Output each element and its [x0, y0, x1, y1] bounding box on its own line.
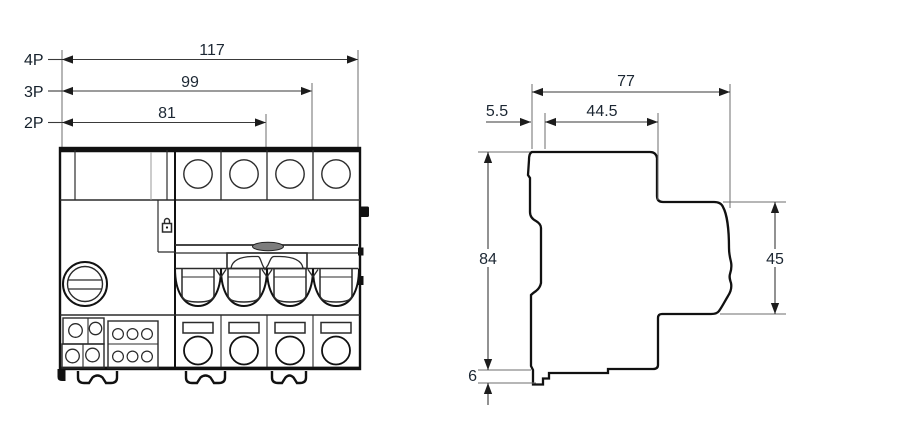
terminal-hole: [276, 160, 304, 188]
dim-value-117: 117: [199, 42, 225, 59]
terminal-hole: [230, 160, 258, 188]
side-view: 77 5.5 44.5 84 45 6: [468, 73, 787, 405]
dim-value-44-5: 44.5: [586, 103, 617, 120]
side-dimension-lines: 77 5.5 44.5 84 45 6: [468, 73, 787, 405]
side-profile: [528, 152, 731, 385]
top-terminal-row: [60, 150, 360, 200]
mounting-feet: [58, 369, 307, 383]
terminal-hole: [322, 160, 350, 188]
handle-hump: [253, 242, 284, 250]
mounting-foot: [272, 371, 306, 383]
dim-value-84: 84: [479, 251, 497, 268]
drawing-svg: 4P 117 3P 99 2P 81: [0, 0, 900, 445]
toggle-handles: [175, 269, 359, 307]
pole-label-4p: 4P: [24, 52, 44, 69]
dim-value-99: 99: [181, 74, 199, 91]
dimension-drawing: 4P 117 3P 99 2P 81: [0, 0, 900, 445]
dim-value-77: 77: [617, 73, 635, 90]
pole-label-2p: 2P: [24, 115, 44, 132]
corner-hook: [58, 369, 66, 381]
test-dial: [63, 262, 107, 306]
padlock-column: [158, 200, 175, 252]
aux-terminals: [62, 318, 104, 368]
dim-value-81: 81: [158, 105, 176, 122]
front-dimension-lines: 4P 117 3P 99 2P 81: [24, 42, 358, 148]
pole-label-3p: 3P: [24, 84, 44, 101]
handle-bar: [231, 257, 303, 270]
front-device-body: [58, 148, 370, 383]
mounting-foot: [78, 371, 117, 383]
dim-value-5-5: 5.5: [486, 103, 508, 120]
front-view: 4P 117 3P 99 2P 81: [24, 42, 369, 383]
mounting-foot: [186, 371, 225, 383]
lockout-knob: [360, 207, 369, 218]
dim-value-6: 6: [468, 368, 477, 385]
dim-value-45: 45: [766, 251, 784, 268]
breaker-faceplate: [175, 242, 358, 269]
terminal-hole: [184, 160, 212, 188]
padlock-icon: [163, 219, 172, 233]
connector-block: [108, 321, 158, 368]
bottom-section: [60, 315, 360, 368]
